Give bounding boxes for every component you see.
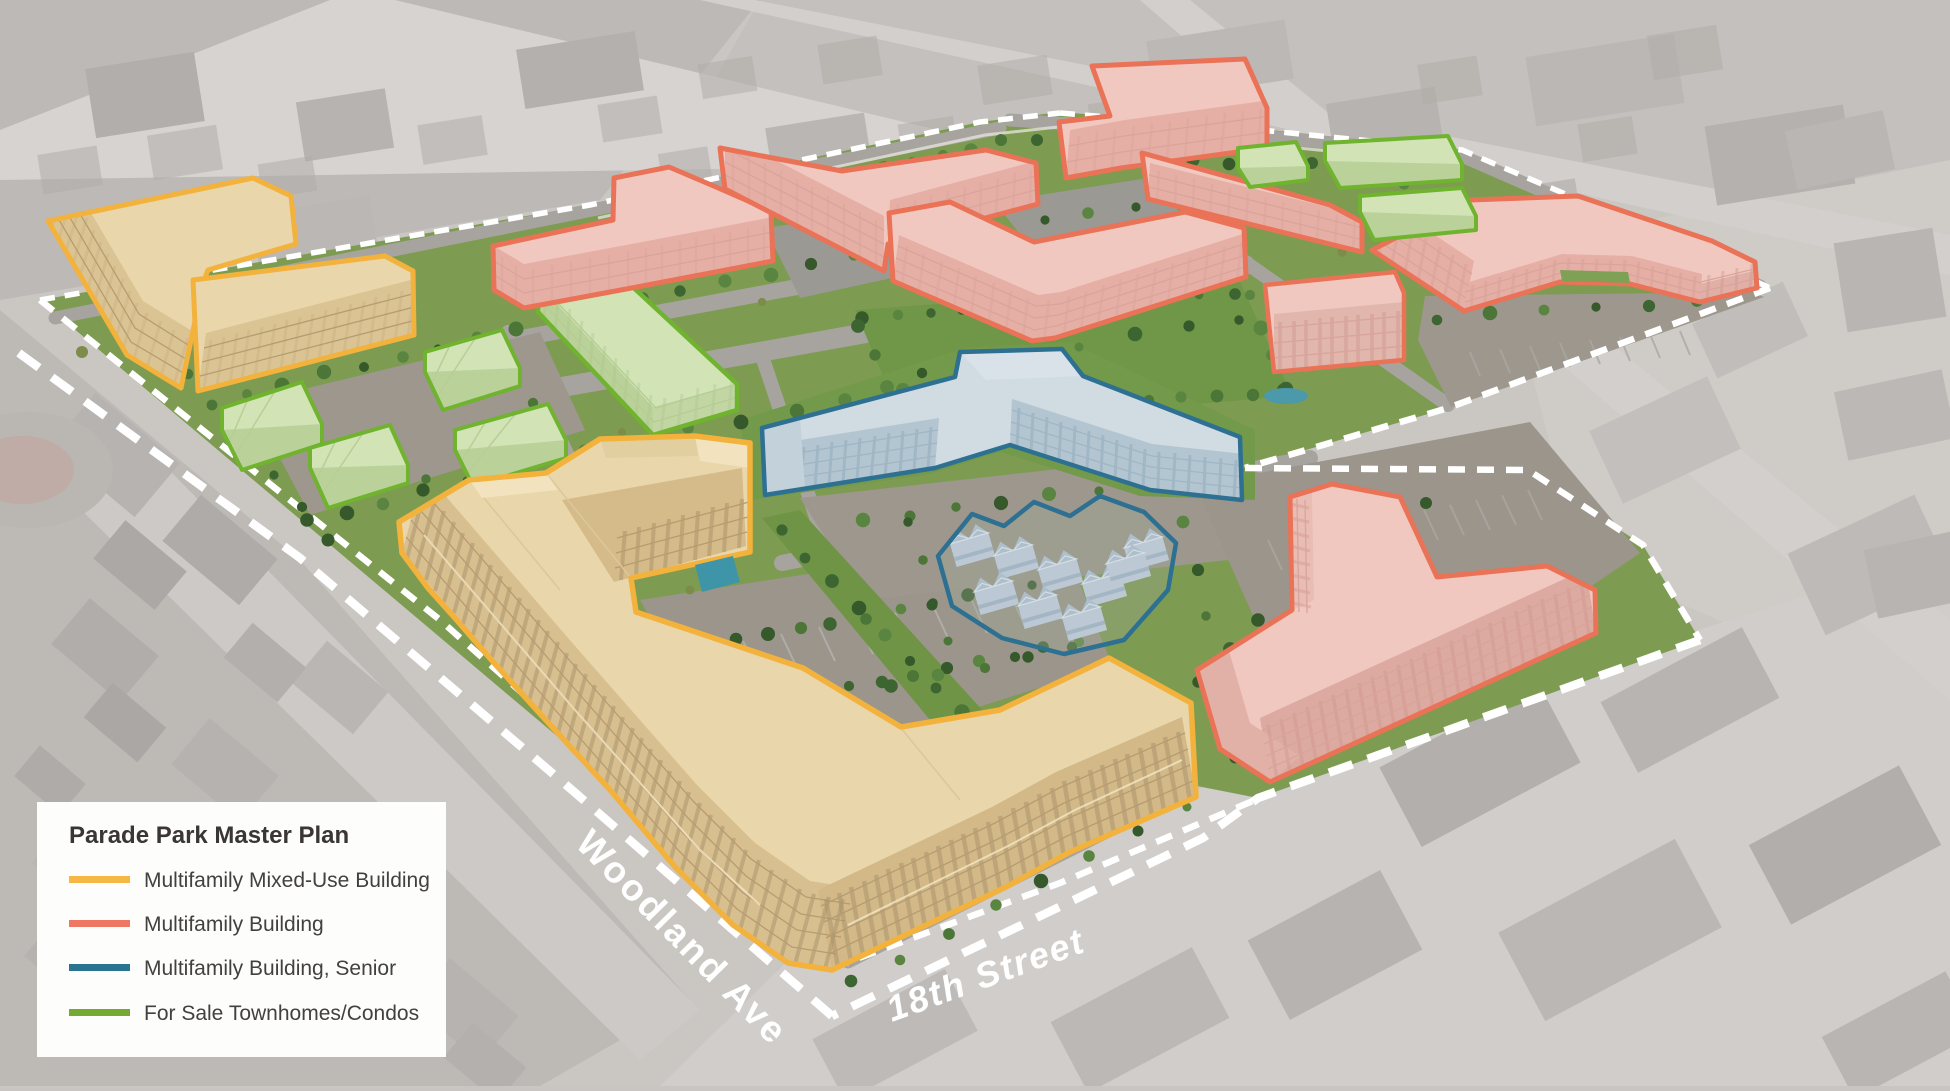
- svg-text:Multifamily Building, Senior: Multifamily Building, Senior: [144, 957, 396, 980]
- svg-text:Parade Park Master Plan: Parade Park Master Plan: [69, 822, 349, 849]
- svg-text:Multifamily Mixed-Use Building: Multifamily Mixed-Use Building: [144, 869, 430, 892]
- svg-text:For Sale Townhomes/Condos: For Sale Townhomes/Condos: [144, 1002, 419, 1025]
- svg-text:Multifamily Building: Multifamily Building: [144, 913, 324, 936]
